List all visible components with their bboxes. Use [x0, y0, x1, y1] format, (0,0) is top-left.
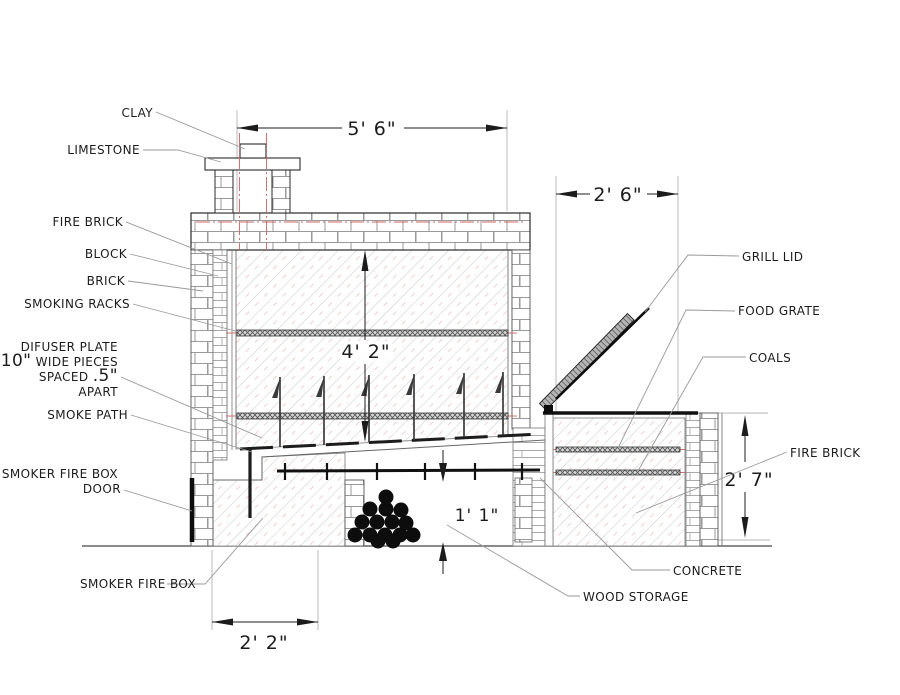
right-firebrick-lining: [508, 250, 512, 436]
dim-wood-storage-height: 1' 1": [439, 450, 499, 574]
chimney-left-column: [215, 170, 233, 213]
difuser-line4: APART: [78, 385, 118, 399]
label-limestone: LIMESTONE: [67, 143, 140, 157]
left-brick-veneer: [191, 250, 213, 546]
dim-grill-width: 2' 6": [556, 184, 678, 206]
left-block-core: [213, 250, 227, 460]
label-smoker-fire-box: SMOKER FIRE BOX: [80, 577, 196, 591]
clay-flue: [240, 144, 266, 158]
label-grill-lid: GRILL LID: [742, 250, 803, 264]
firebox-door-line1: SMOKER FIRE BOX: [2, 467, 118, 481]
smoker-section-drawing: 5' 6" 2' 6" 4' 2" 2' 7": [0, 0, 900, 695]
label-difuser-plate: DIFUSER PLATE 10" WIDE PIECES SPACED .5"…: [1, 340, 119, 399]
right-brick-wall: [512, 250, 530, 428]
difuser-line3: SPACED .5": [39, 366, 118, 386]
top-firebrick-band: [191, 213, 530, 250]
dim-smoker-inner-width-text: 5' 6": [347, 118, 396, 140]
dim-grill-height: 2' 7": [724, 415, 773, 538]
grill-pit-fill: [553, 418, 685, 546]
concrete-masses: [213, 250, 685, 546]
limestone-cap: [205, 158, 300, 170]
label-smoking-racks: SMOKING RACKS: [24, 297, 130, 311]
dim-firebox-width-text: 2' 2": [239, 632, 288, 654]
firebox-fill: [213, 453, 345, 546]
grill-left-wall: [545, 413, 553, 546]
label-brick: BRICK: [87, 274, 126, 288]
coals-grate-bar: [556, 470, 680, 475]
label-block: BLOCK: [85, 247, 128, 261]
label-wood-storage: WOOD STORAGE: [583, 590, 689, 604]
leader-firebox-door: [124, 490, 192, 511]
drawing-page: 5' 6" 2' 6" 4' 2" 2' 7": [0, 0, 900, 695]
chimney-right-column: [272, 170, 290, 213]
label-concrete: CONCRETE: [673, 564, 742, 578]
dim-grill-height-text: 2' 7": [724, 469, 773, 491]
left-firebrick-lining: [227, 250, 236, 450]
leader-clay: [156, 112, 245, 149]
grill-right-brick-column: [700, 413, 718, 546]
label-coals: COALS: [749, 351, 791, 365]
label-fire-brick-right: FIRE BRICK: [790, 446, 861, 460]
dim-chamber-height-text: 4' 2": [341, 341, 390, 363]
smoking-rack-upper: [237, 330, 508, 336]
dim-wood-storage-height-text: 1' 1": [455, 506, 500, 526]
difuser-line1: DIFUSER PLATE: [21, 340, 118, 354]
mid-brick-patch: [515, 478, 532, 542]
label-fire-brick-left: FIRE BRICK: [52, 215, 123, 229]
label-food-grate: FOOD GRATE: [738, 304, 820, 318]
chimney: [205, 144, 300, 213]
firebox-door-line2: DOOR: [83, 482, 121, 496]
dim-grill-width-text: 2' 6": [593, 184, 642, 206]
grill-right-block-column: [686, 413, 700, 546]
dim-firebox-width: 2' 2": [212, 619, 318, 655]
label-smoke-path: SMOKE PATH: [47, 408, 128, 422]
label-clay: CLAY: [121, 106, 153, 120]
label-smoker-fire-box-door: SMOKER FIRE BOX DOOR: [2, 467, 121, 496]
smoking-rack-lower: [237, 413, 508, 419]
dim-smoker-inner-width: 5' 6": [237, 118, 507, 140]
leader-grill-lid: [645, 255, 739, 312]
